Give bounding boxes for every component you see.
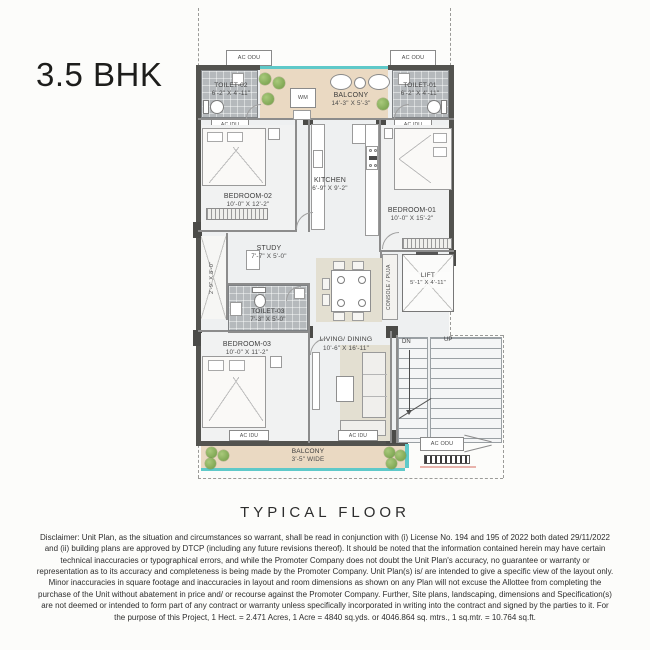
burner [374,149,377,152]
room-label-lift: LIFT 5'-1" X 4'-11" [404,272,452,288]
wc-tank [203,100,209,114]
wm-label: WM [298,95,308,101]
dining-chair [322,294,330,306]
ac-idu-box: AC IDU [338,430,378,441]
room-label-balcony-bottom: BALCONY 3'-5" WIDE [268,448,348,465]
room-name: TOILET-02 [203,82,259,90]
accent-line [420,466,476,468]
room-dims: 10'-0" X 11'-2" [206,349,288,357]
leader-line [464,445,491,453]
room-label-study: STUDY 7'-7" X 5'-0" [234,244,304,261]
room-name: BALCONY [268,448,348,456]
washing-machine: WM [290,88,316,108]
wc-tank [441,100,447,114]
wc-tank [252,287,266,293]
dining-chair [352,312,364,321]
plate [337,299,345,307]
pillow [208,360,224,371]
room-label-bedroom-02: BEDROOM-02 10'-0" X 12'-2" [208,192,288,209]
stair-up-label: UP [444,337,452,343]
bed-fold [233,147,263,183]
partition [198,230,297,232]
disclaimer-text: Disclaimer: Unit Plan, as the situation … [36,532,614,623]
pillow [433,133,447,143]
plate [358,299,366,307]
tv-unit [312,352,320,410]
pillow [433,147,447,157]
bed [202,128,266,186]
room-name: TOILET-03 [230,308,306,316]
dining-chair [322,278,330,290]
balcony-seat [330,74,352,90]
duct-dims: 2'-9" X 8'-0" [209,246,215,310]
hob-control [369,156,377,160]
wardrobe [402,238,452,249]
room-dims: 7'-7" X 5'-0" [234,253,304,261]
ac-idu-label: AC IDU [349,433,367,439]
kitchen-sink [313,150,323,168]
partition [308,331,310,443]
dining-chair [352,261,364,270]
room-dims: 10'-0" X 12'-2" [208,201,288,209]
room-name: BEDROOM-03 [206,340,288,349]
balcony-bottom-edge [201,468,405,471]
side-table [268,128,280,140]
ac-odu-label: AC ODU [238,55,261,61]
room-dims: 3'-5" WIDE [268,456,348,464]
plant-icon [273,77,285,89]
sofa-seam [363,396,387,397]
room-name: BEDROOM-01 [372,206,452,215]
room-name: BALCONY [316,91,386,100]
plant-icon [259,73,271,85]
ac-odu-label: AC ODU [402,55,425,61]
plate [358,276,366,284]
pillow [227,132,243,142]
plant-icon [206,447,217,458]
coffee-table [336,376,354,402]
partition [198,330,228,332]
ac-idu-box: AC IDU [229,430,269,441]
room-label-toilet-01: TOILET-01 6'-2" X 4'-11" [392,82,448,99]
dining-chair [333,261,345,270]
plant-icon [384,447,395,458]
bed [202,356,266,428]
wc-bowl [254,294,266,308]
wc-bowl [427,100,441,114]
side-table [384,128,393,139]
pillow [229,360,245,371]
bed-fold [399,159,431,183]
room-label-balcony-top: BALCONY 14'-3" X 5'-3" [316,91,386,108]
plant-icon [386,458,397,469]
burner [369,164,372,167]
room-name: LIFT [404,272,452,280]
lift-door [416,252,438,255]
hob [366,146,378,170]
plant-icon [218,450,229,461]
room-dims: 5'-1" X 4'-11" [404,280,452,288]
room-name: STUDY [234,244,304,253]
room-dims: 7'-3" X 5'-0" [230,316,306,324]
bed [394,128,452,190]
plant-icon [205,458,216,469]
balcony-stool [354,77,366,89]
ac-odu-box-top-left: AC ODU [226,50,272,66]
console-puja-label: CONSOLE / PUJA [386,258,392,316]
plate [337,276,345,284]
hatched-strip [424,455,470,464]
burner [374,164,377,167]
room-dims: 6'-2" X 4'-11" [203,90,259,98]
stair-dn-label: DN [402,339,411,345]
room-label-bedroom-01: BEDROOM-01 10'-0" X 15'-2" [372,206,452,223]
room-dims: 10'-0" X 15'-2" [372,215,452,223]
burner [369,149,372,152]
partition [308,283,310,333]
room-name: BEDROOM-02 [208,192,288,201]
partition [379,120,381,252]
plot-boundary-bottom [198,478,503,479]
sofa [362,352,386,418]
wardrobe [206,208,268,220]
plot-boundary-right-lower [503,335,504,478]
fridge [352,124,366,144]
ac-odu-box-top-right: AC ODU [390,50,436,66]
partition [390,331,392,443]
ac-idu-label: AC IDU [240,433,258,439]
partition [295,120,297,232]
room-label-kitchen: KITCHEN 6'-9" X 9'-2" [300,176,360,193]
stair-flight-down [398,337,428,443]
room-dims: 6'-2" X 4'-11" [392,90,448,98]
sofa-seam [363,374,387,375]
room-label-toilet-02: TOILET-02 6'-2" X 4'-11" [203,82,259,99]
room-name: KITCHEN [300,176,360,185]
side-table [270,356,282,368]
wc-bowl [210,100,224,114]
plant-icon [262,93,274,105]
dining-chair [333,312,345,321]
plant-icon [395,450,406,461]
bed-fold [233,377,263,421]
room-name: TOILET-01 [392,82,448,90]
pillow [207,132,223,142]
ac-odu-label: AC ODU [431,441,454,447]
plot-boundary-step [450,335,503,336]
room-dims: 14'-3" X 5'-3" [316,100,386,108]
room-label-bedroom-03: BEDROOM-03 10'-0" X 11'-2" [206,340,288,357]
floor-caption: TYPICAL FLOOR [0,504,650,521]
room-dims: 6'-9" X 9'-2" [300,185,360,193]
balcony-seat [368,74,390,90]
ac-odu-box-bottom: AC ODU [420,437,464,451]
room-label-toilet-03: TOILET-03 7'-3" X 5'-0" [230,308,306,325]
dining-table [331,270,371,312]
stair-flight-up [430,337,502,443]
stair-arrow-line [409,350,410,410]
bed-fold [399,135,431,159]
utility-sink [293,110,311,120]
